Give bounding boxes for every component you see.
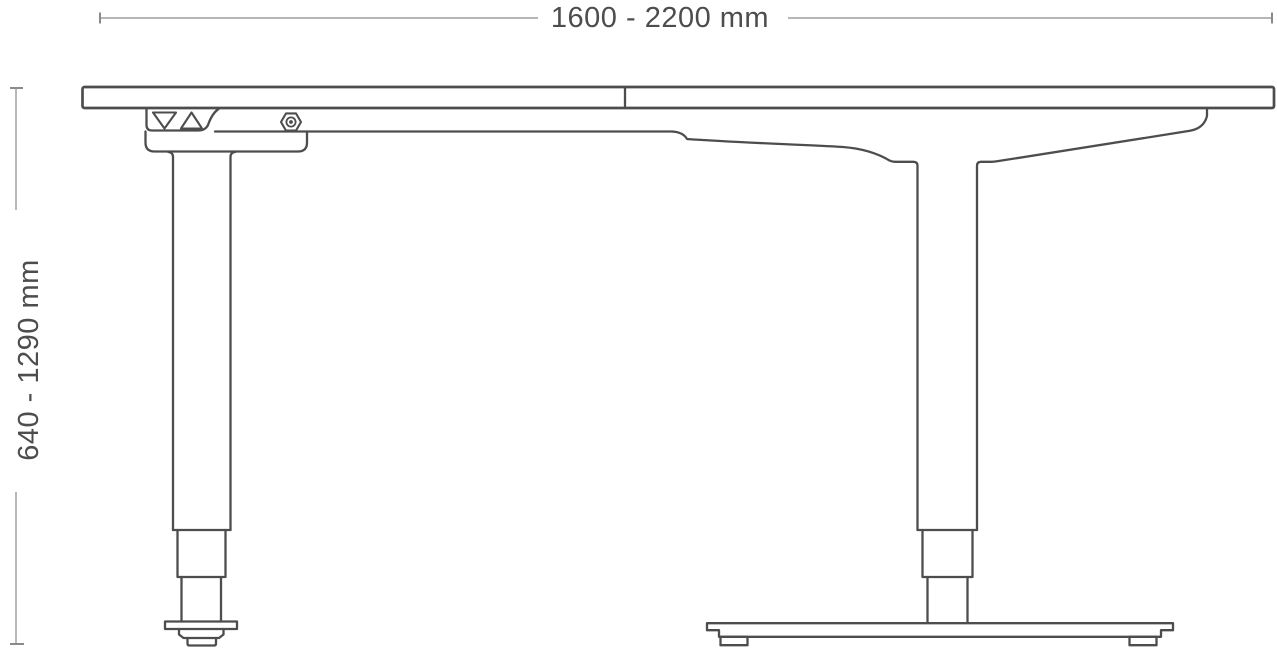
left-foot-body (179, 629, 224, 638)
base-plate-pad-right (1130, 637, 1157, 645)
right-leg-middle-section (923, 530, 973, 577)
left-foot-flange (165, 622, 237, 630)
left-leg-foot (165, 622, 237, 646)
technical-drawing-page: 1600 - 2200 mm 640 - 1290 mm (0, 0, 1277, 649)
right-leg-column (918, 530, 978, 622)
hex-bolt-center-dot (289, 120, 293, 124)
left-leg-lower-section (182, 577, 222, 622)
right-leg-bracket (672, 109, 1207, 531)
right-leg-lower-section (928, 577, 968, 622)
left-leg-bracket (146, 132, 308, 152)
right-bracket-right-curve (977, 109, 1207, 531)
tabletop (83, 87, 1275, 108)
base-plate-profile (707, 623, 1173, 637)
height-dimension-label: 640 - 1290 mm (9, 160, 49, 560)
down-arrow-icon (153, 113, 176, 129)
left-leg-upper-left-edge (169, 152, 174, 530)
right-bracket-left-curve (672, 132, 918, 531)
width-dimension-label: 1600 - 2200 mm (460, 0, 860, 38)
hex-bolt-icon (281, 113, 301, 130)
desk-technical-drawing (0, 0, 1277, 649)
base-plate-pad-left (721, 637, 748, 645)
up-arrow-icon (181, 113, 202, 129)
left-leg-column (169, 152, 236, 622)
left-leg-middle-section (178, 530, 226, 577)
left-leg-upper-right-edge (231, 152, 236, 530)
right-base-plate (707, 623, 1173, 645)
